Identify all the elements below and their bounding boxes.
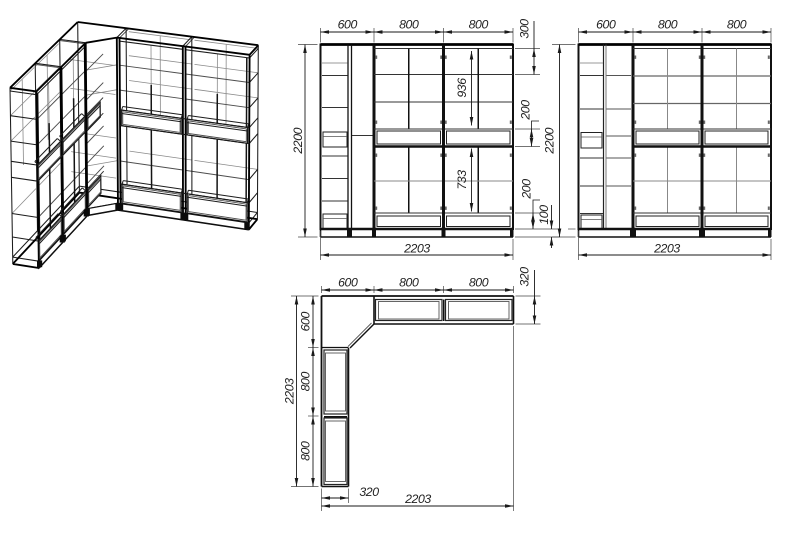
svg-text:800: 800 xyxy=(658,18,678,32)
svg-text:320: 320 xyxy=(359,485,379,499)
svg-text:2203: 2203 xyxy=(403,242,430,256)
svg-text:936: 936 xyxy=(455,78,469,98)
svg-text:100: 100 xyxy=(537,205,551,225)
svg-text:600: 600 xyxy=(596,18,616,32)
svg-text:320: 320 xyxy=(518,267,532,287)
svg-text:600: 600 xyxy=(338,276,358,290)
svg-text:800: 800 xyxy=(469,18,489,32)
svg-text:300: 300 xyxy=(518,19,532,39)
svg-text:2200: 2200 xyxy=(543,127,557,154)
svg-text:733: 733 xyxy=(455,170,469,190)
svg-text:2203: 2203 xyxy=(653,242,680,256)
svg-text:600: 600 xyxy=(299,312,313,332)
svg-text:2203: 2203 xyxy=(282,378,296,405)
svg-text:800: 800 xyxy=(399,18,419,32)
svg-text:800: 800 xyxy=(469,276,489,290)
svg-text:200: 200 xyxy=(519,100,533,121)
svg-text:200: 200 xyxy=(520,179,534,200)
svg-text:800: 800 xyxy=(727,18,747,32)
svg-text:800: 800 xyxy=(399,276,419,290)
svg-text:800: 800 xyxy=(299,441,313,461)
svg-text:800: 800 xyxy=(299,372,313,392)
svg-text:2203: 2203 xyxy=(404,492,431,506)
svg-text:600: 600 xyxy=(338,18,358,32)
svg-text:2200: 2200 xyxy=(291,127,305,154)
